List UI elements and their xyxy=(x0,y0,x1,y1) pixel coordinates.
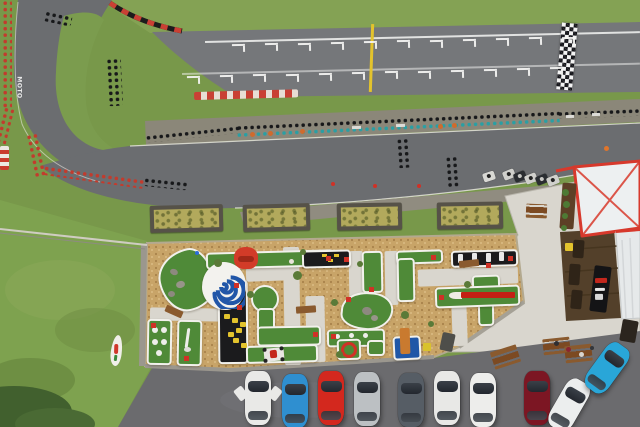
grid-box-mark-r2-6 xyxy=(352,72,365,80)
tee-marker-8 xyxy=(313,332,318,337)
shrub-tuft-2 xyxy=(247,291,254,298)
table-person-1 xyxy=(554,341,559,346)
zigzag-block-5 xyxy=(228,332,234,337)
zigzag-block-6 xyxy=(233,338,239,343)
car-door-right xyxy=(267,385,283,401)
tee-marker-7 xyxy=(234,283,239,288)
tire-stack-track-1 xyxy=(396,138,411,169)
zigzag-block-4 xyxy=(236,328,242,333)
rock-5 xyxy=(371,315,378,321)
parked-car-white-doors-open xyxy=(245,371,271,425)
golf-visitor-person xyxy=(289,259,294,264)
parked-car-red xyxy=(318,371,344,425)
toy-kart-wheel-2 xyxy=(279,346,283,350)
sign-red-stripe xyxy=(595,278,607,283)
pencil-body xyxy=(461,292,515,298)
golf-wood-bench-2 xyxy=(296,305,316,313)
golf-red-loop-obstacle xyxy=(341,342,357,358)
tire-row-lower-red xyxy=(43,165,145,189)
grid-box-mark-r1-10 xyxy=(529,37,542,45)
grid-box-mark-r2-7 xyxy=(385,71,398,79)
clubhouse-shrub-3 xyxy=(562,213,568,219)
yellow-dash-3 xyxy=(334,254,339,257)
cone-3 xyxy=(417,184,421,188)
tire-orange-1 xyxy=(250,132,255,137)
zigzag-block-2 xyxy=(232,318,238,323)
driver-seat xyxy=(506,171,511,176)
driver-seat xyxy=(517,173,522,178)
tee-marker-6 xyxy=(508,256,513,261)
tee-marker-ball-blue xyxy=(195,251,199,255)
cone-2 xyxy=(373,184,377,188)
clubhouse-shrub-2 xyxy=(563,201,570,208)
tire-row-main-left xyxy=(145,125,240,143)
barrier-red-white xyxy=(0,146,9,170)
tee-marker-13 xyxy=(439,295,444,300)
shrub-tuft-10 xyxy=(336,351,343,358)
dots-bump-4 xyxy=(161,339,167,345)
golf-hole-club-lane xyxy=(177,320,203,366)
grid-box-mark-r2-8 xyxy=(418,70,431,78)
spiral-icon xyxy=(203,263,245,309)
grid-box-mark-r2-3 xyxy=(253,74,266,82)
domino-3 xyxy=(486,253,491,262)
yellow-bin xyxy=(565,243,573,251)
tee-marker-1 xyxy=(237,305,242,310)
hedge-planter-2 xyxy=(243,203,311,232)
car-door-left xyxy=(233,385,249,401)
parked-car-maroon xyxy=(524,371,550,425)
shrub-tuft-5 xyxy=(357,261,363,267)
shrub-tuft-1 xyxy=(214,259,222,267)
plaza-picnic-table xyxy=(526,204,547,219)
tee-marker-4 xyxy=(369,287,374,292)
utility-box-yellow xyxy=(423,343,431,351)
tee-marker-14 xyxy=(486,263,491,268)
tee-marker-5 xyxy=(431,255,436,260)
shrub-tuft-7 xyxy=(428,321,434,327)
golf-toy-kart xyxy=(263,347,284,362)
table-person-3 xyxy=(579,352,584,357)
ball-bump-3 xyxy=(363,333,368,338)
flag-green-mark xyxy=(114,355,118,361)
venue-sign xyxy=(589,265,611,313)
barrier-banner-3 xyxy=(566,115,574,118)
tire-orange-5 xyxy=(452,123,457,128)
zigzag-block-1 xyxy=(224,314,230,319)
hedge-planter-1 xyxy=(150,204,224,233)
tire-orange-3 xyxy=(300,129,305,134)
ball-bump-2 xyxy=(349,333,354,338)
utility-box-dark xyxy=(439,332,455,352)
dots-bump-2 xyxy=(161,327,167,333)
grid-box-mark-r2-11 xyxy=(517,68,530,76)
deck-bench-2 xyxy=(568,264,580,286)
tee-marker-3 xyxy=(344,257,349,262)
tire-wall-island-right xyxy=(106,58,123,107)
dark-kart-by-building xyxy=(619,319,639,343)
driver-seat xyxy=(550,177,555,182)
grid-box-mark-r2-9 xyxy=(451,70,464,78)
tire-wall-left-red xyxy=(2,0,12,110)
grid-box-mark-r2-10 xyxy=(484,69,497,77)
grid-box-mark-r2-12 xyxy=(550,67,563,75)
barrier-banner-4 xyxy=(592,113,600,116)
golf-path-5 xyxy=(246,267,290,282)
track-marshal-person xyxy=(604,146,609,151)
cone-1 xyxy=(331,182,335,186)
tire-stack-track-2 xyxy=(445,156,460,189)
tee-marker-9 xyxy=(151,323,156,328)
driver-seat xyxy=(539,176,544,181)
tee-marker-12 xyxy=(346,297,351,302)
tire-row-lower-black xyxy=(143,177,188,191)
start-line-yellow xyxy=(369,24,374,92)
deck-bench-1 xyxy=(572,240,584,259)
grid-box-mark-r1-1 xyxy=(232,44,245,52)
grid-box-mark-r1-6 xyxy=(397,40,410,48)
clubhouse-shrub-1 xyxy=(562,189,569,196)
barrier-banner-2 xyxy=(396,124,405,127)
grid-box-mark-r2-4 xyxy=(286,74,299,82)
shrub-tuft-9 xyxy=(300,249,306,255)
dots-bump-1 xyxy=(152,327,158,333)
dots-bump-3 xyxy=(152,339,158,345)
flag-red-mark xyxy=(114,344,118,354)
tee-marker-11 xyxy=(331,334,336,339)
kerb-candy-stripe xyxy=(194,89,298,100)
grid-box-mark-r1-5 xyxy=(364,41,377,49)
golf-club-head xyxy=(184,347,191,352)
hedge-planter-4 xyxy=(437,201,503,229)
grid-box-mark-r1-7 xyxy=(430,39,443,47)
hedge-planter-3 xyxy=(337,202,402,230)
golf-orange-bridge xyxy=(400,328,411,354)
grid-box-mark-r1-8 xyxy=(463,39,476,47)
toy-kart-wheel-1 xyxy=(262,348,266,352)
rock-3 xyxy=(168,291,175,297)
table-person-2 xyxy=(566,347,571,352)
parked-car-blue xyxy=(282,374,308,427)
shrub-tuft-4 xyxy=(331,299,338,306)
deck-bench-3 xyxy=(570,290,583,310)
sign-logo-line xyxy=(595,288,605,291)
go-kart-on-track xyxy=(482,170,496,182)
go-kart-parked-5 xyxy=(546,174,560,187)
tee-marker-10 xyxy=(184,356,189,361)
domino-4 xyxy=(499,252,504,261)
driver xyxy=(486,174,491,179)
scene-objects-layer xyxy=(0,0,640,427)
grid-box-mark-r1-11 xyxy=(562,36,575,44)
tee-marker-2 xyxy=(326,256,331,261)
aerial-photo-karting-complex: MOTO xyxy=(0,0,640,427)
grid-box-mark-r1-2 xyxy=(265,43,278,51)
grid-box-mark-r1-3 xyxy=(298,42,311,50)
shrub-tuft-3 xyxy=(293,271,302,280)
parked-car-silver xyxy=(354,372,380,426)
grid-box-mark-r2-2 xyxy=(220,75,233,83)
dots-bump-5 xyxy=(156,350,162,356)
grid-box-mark-r2-1 xyxy=(187,76,200,84)
grid-box-mark-r1-4 xyxy=(331,42,344,50)
toy-kart-seat xyxy=(270,350,278,359)
table-person-4 xyxy=(590,346,594,350)
golf-spiral-feature xyxy=(202,262,246,310)
clubhouse-shrub-4 xyxy=(561,225,567,231)
ball-bump-1 xyxy=(335,334,340,339)
shrub-tuft-6 xyxy=(401,311,409,319)
feather-flag xyxy=(109,334,124,366)
shrub-tuft-8 xyxy=(464,281,471,288)
golf-hole-hook-end xyxy=(367,340,385,356)
barrier-banner-1 xyxy=(352,126,361,129)
parking-picnic-table-1 xyxy=(490,344,521,369)
sign-logo-mark xyxy=(595,294,603,300)
parked-car-slate-gray xyxy=(398,373,424,427)
tire-orange-4 xyxy=(438,124,443,129)
grid-box-mark-r2-5 xyxy=(319,73,332,81)
grid-box-mark-r1-9 xyxy=(496,38,509,46)
tire-orange-2 xyxy=(268,131,273,136)
parked-car-white-2 xyxy=(434,371,460,425)
parked-car-white-3 xyxy=(470,373,496,427)
tire-wall-island-top xyxy=(43,10,73,27)
tunnel-shade xyxy=(238,256,254,262)
driver-seat xyxy=(528,175,533,180)
zigzag-block-3 xyxy=(240,322,246,327)
golf-hole-dogleg-leg xyxy=(397,258,416,302)
